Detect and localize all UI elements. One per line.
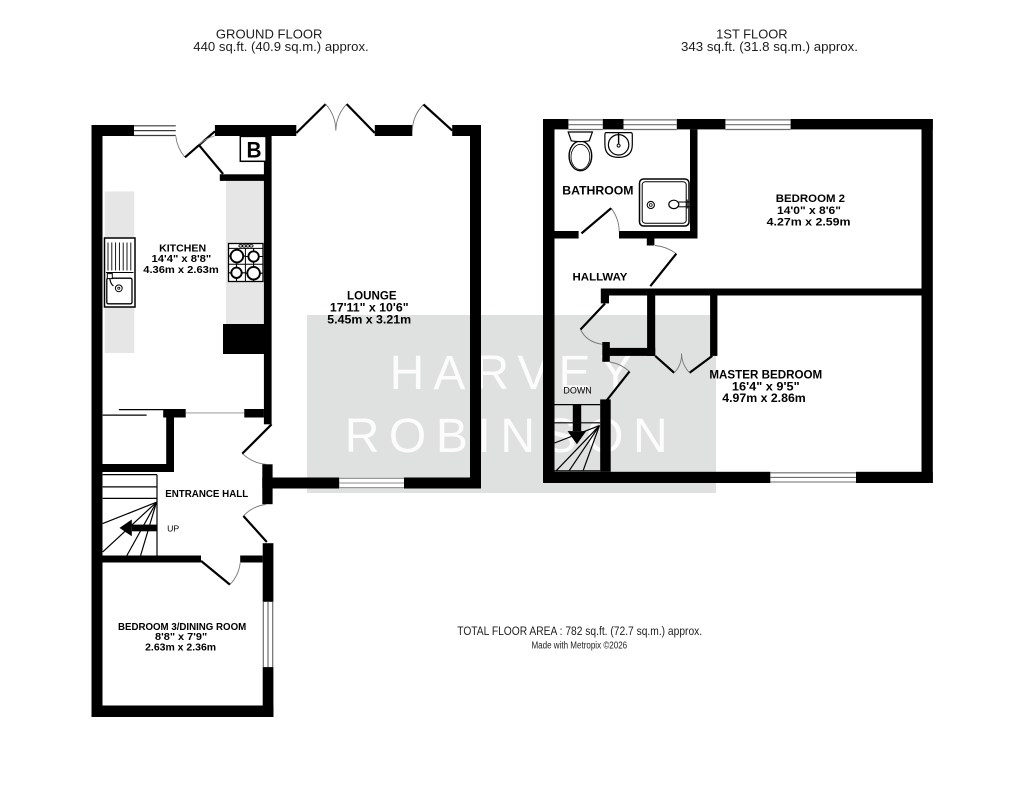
svg-text:2.63m x 2.36m: 2.63m x 2.36m xyxy=(145,642,216,653)
svg-text:BATHROOM: BATHROOM xyxy=(562,186,633,198)
svg-text:KITCHEN: KITCHEN xyxy=(159,243,206,254)
svg-text:ROBINSON: ROBINSON xyxy=(345,410,668,463)
svg-text:LOUNGE: LOUNGE xyxy=(347,290,397,302)
svg-text:UP: UP xyxy=(167,523,179,533)
svg-text:4.36m x 2.63m: 4.36m x 2.63m xyxy=(143,265,219,276)
svg-text:B: B xyxy=(247,138,262,163)
svg-text:16'4" x 9'5": 16'4" x 9'5" xyxy=(732,381,800,393)
svg-text:BEDROOM 2: BEDROOM 2 xyxy=(776,193,845,205)
svg-text:17'11" x 10'6": 17'11" x 10'6" xyxy=(330,302,409,314)
svg-text:MASTER BEDROOM: MASTER BEDROOM xyxy=(709,369,822,381)
svg-text:14'0" x 8'6": 14'0" x 8'6" xyxy=(777,205,841,217)
svg-text:4.27m x 2.59m: 4.27m x 2.59m xyxy=(767,217,851,229)
svg-text:4.97m x 2.86m: 4.97m x 2.86m xyxy=(722,393,806,405)
svg-text:343 sq.ft. (31.8 sq.m.) approx: 343 sq.ft. (31.8 sq.m.) approx. xyxy=(681,39,858,54)
svg-text:TOTAL FLOOR AREA : 782 sq.ft.: TOTAL FLOOR AREA : 782 sq.ft. (72.7 sq.m… xyxy=(457,624,702,638)
svg-text:HALLWAY: HALLWAY xyxy=(573,272,628,284)
svg-text:ENTRANCE HALL: ENTRANCE HALL xyxy=(165,489,248,500)
svg-text:14'4" x 8'8": 14'4" x 8'8" xyxy=(152,254,212,265)
svg-text:DOWN: DOWN xyxy=(563,385,592,396)
svg-text:5.45m x 3.21m: 5.45m x 3.21m xyxy=(327,314,411,326)
svg-text:440 sq.ft. (40.9 sq.m.) approx: 440 sq.ft. (40.9 sq.m.) approx. xyxy=(193,39,368,54)
svg-text:Made with Metropix ©2026: Made with Metropix ©2026 xyxy=(531,641,627,652)
